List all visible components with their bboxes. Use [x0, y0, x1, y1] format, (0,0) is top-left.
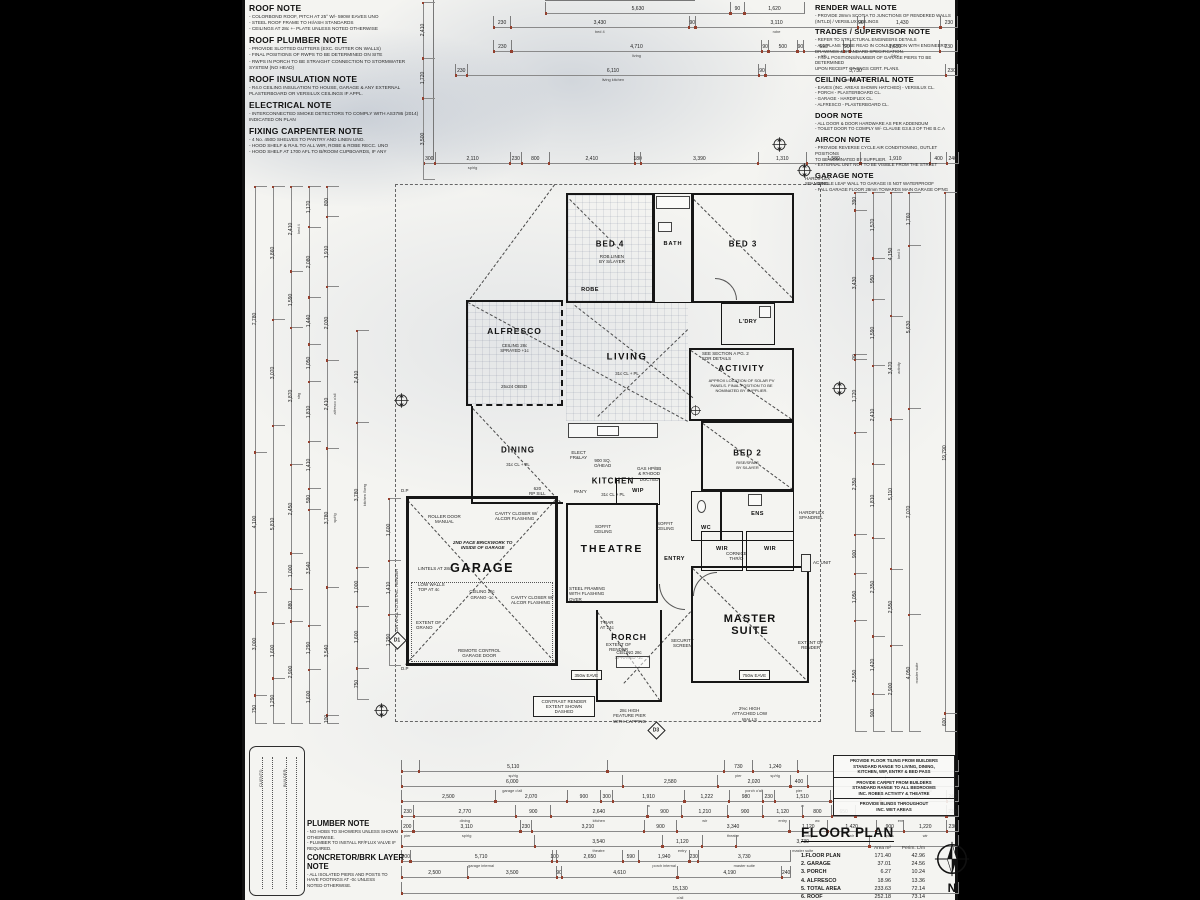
room-sublabel: 31c CL + PL: [476, 462, 561, 467]
table-spacer: [801, 845, 859, 852]
annotation-ohead: 900 SQ. O/HEAD: [594, 458, 611, 469]
note-title: DOOR NOTE: [815, 111, 957, 120]
dim-column: 19,790600: [945, 192, 957, 732]
cutoff-plan-fragment: [545, 0, 695, 1]
table-row: 5. TOTAL AREA233.6372.14: [801, 885, 929, 893]
note-title: ROOF INSULATION NOTE: [249, 74, 421, 84]
note-body: - ALL DOOR & DOOR HARDWARE AS PER ADDEND…: [815, 121, 957, 132]
north-label: N: [931, 881, 973, 895]
clients-label: CLIENTS:: [258, 769, 263, 787]
dim-column: 2,410bed 41,5903,870strg2,4501,0008802,9…: [291, 186, 303, 724]
dim-row: 5,630901,620: [545, 2, 805, 14]
note-body: - PROVIDE 28mm SCOTIA TO JUNCTIONS OF RE…: [815, 13, 957, 24]
annotation-downpipe: D.P: [401, 488, 409, 493]
annotation-cavity-closer: CAVITY CLOSER W/ ALCOR FLASHING: [511, 595, 553, 606]
section-marker-icon: [689, 404, 702, 417]
note-body: - REFER TO STRUCTURAL ENGINEERS DETAILS …: [815, 37, 957, 71]
row-area: 37.01: [859, 860, 895, 868]
annotation-obsd-door: 25x24 OBSD: [501, 384, 527, 389]
annotation-soffit-ceiling: SOFFIT CEILING: [656, 521, 674, 532]
annotation-remote-door: REMOTE CONTROL GARAGE DOOR: [458, 648, 501, 659]
note-title: CEILING MATERIAL NOTE: [815, 75, 957, 84]
room-label: WIP: [632, 488, 644, 494]
note-body: - INTERCONNECTED SMOKE DETECTORS TO COMP…: [249, 111, 421, 123]
room-label: THEATRE: [581, 543, 644, 555]
room-bed2: BED 2RISE/SPALS BY S/LAYER: [701, 421, 794, 491]
section-marker-icon: [393, 392, 410, 409]
table-row: 3. PORCH6.2710.24: [801, 868, 929, 876]
builder-label: BUILDER:: [282, 769, 287, 787]
dim-column: 3,8603,0705,8101,6001,290: [273, 186, 285, 724]
note-title: ROOF PLUMBER NOTE: [249, 35, 421, 45]
room-label: ENS: [751, 511, 764, 517]
concretor-note-body: - ALL ISOLATED PIERS AND POSTS TO HAVE F…: [307, 872, 427, 889]
room-living: LIVING31c CL + PL: [566, 303, 688, 421]
row-label: 4. ALFRESCO: [801, 877, 859, 885]
annotation-extent-render: EXTENT OF RENDER: [798, 640, 823, 651]
note-title: TRADES / SUPERVISOR NOTE: [815, 27, 957, 36]
room-label: DINING: [501, 446, 535, 455]
concretor-note-title: CONCRETOR/BRK LAYER NOTE: [307, 854, 427, 872]
annotation-eave-350: 350w EAVE: [571, 670, 602, 680]
row-label: 2. GARAGE: [801, 860, 859, 868]
diamond-marker-d3: D3: [647, 721, 665, 739]
note-title: ELECTRICAL NOTE: [249, 100, 421, 110]
room-label: ALFRESCO: [487, 326, 542, 336]
row-label: 6. ROOF: [801, 893, 859, 900]
dim-column: 7,7804,1003,000750: [255, 186, 267, 724]
annotation-lintels: LINTELS AT 28c: [418, 566, 451, 571]
basin: [658, 222, 672, 232]
annotation-extent-render: EXTENT OF RENDER: [606, 642, 631, 653]
section-marker-icon: [373, 702, 390, 719]
note-body: - SINGLE LEAF WALL TO GARAGE IS NOT WATE…: [815, 181, 957, 192]
annotation-brickwork: 2ND FACE BRICKWORK TO INSIDE OF GARAGE: [453, 540, 512, 551]
plumber-note-body: - NO HOBS TO SHOWERS UNLESS SHOWN OTHERW…: [307, 829, 427, 852]
row-area: 6.27: [859, 868, 895, 876]
annotation-ac-unit: AC UNIT: [813, 560, 831, 565]
row-area: 252.18: [859, 893, 895, 900]
north-compass: N: [931, 840, 973, 895]
room-label: PORCH: [611, 632, 647, 642]
annotation-see-section: SEE SECTION A PG. 2 FOR DETAILS: [702, 351, 749, 362]
dim-column: 1,5709501,5902,4101,8102,3501,420900: [873, 192, 885, 732]
room-label: BED 2: [733, 449, 762, 458]
row-perim: 24.56: [895, 860, 929, 868]
dotted-line: [296, 757, 297, 889]
note-body: - R4.0 CEILING INSULATION TO HOUSE, GARA…: [249, 85, 421, 97]
annotation-hardiflex: HARDIFLEX SPANDREL: [799, 510, 824, 521]
note-title: FIXING CARPENTER NOTE: [249, 126, 421, 136]
room-label: BED 4: [596, 239, 625, 248]
row-perim: 13.36: [895, 877, 929, 885]
note-title: ROOF NOTE: [249, 3, 421, 13]
note-body: - 4 No. 450D SHELVES TO PANTRY AND LINEN…: [249, 137, 421, 155]
room-label: LIVING: [607, 352, 648, 363]
room-label: GARAGE: [450, 561, 514, 575]
note-title: AIRCON NOTE: [815, 135, 957, 144]
room-wir-2: WIR: [746, 531, 794, 571]
provide-note: PROVIDE CARPET FROM BUILDERS STANDARD RA…: [834, 778, 954, 800]
room-sublabel: 31c CL + PL: [570, 371, 685, 376]
note-title: GARAGE NOTE: [815, 171, 957, 180]
dim-column: 1,7605,6307,0704,050master suite: [909, 192, 921, 732]
room-label: BED 3: [729, 239, 758, 248]
ens-basin: [748, 494, 762, 506]
room-sublabel: APPROX LOCATION OF SOLAR PV PANELS. FINA…: [694, 378, 789, 393]
room-robe: ROBE: [568, 281, 612, 301]
dim-column: 2,4103,780kitchen l'berg1,0001,600750: [357, 330, 369, 700]
row-perim: 42.96: [895, 852, 929, 860]
room-label: ACTIVITY: [718, 363, 765, 373]
section-marker-icon: [831, 380, 848, 397]
row-area: 233.63: [859, 885, 895, 893]
room-label: ROBE: [581, 287, 599, 293]
marker-label: D1: [394, 638, 400, 644]
floor-plan-title: FLOOR PLAN: [801, 825, 894, 842]
annotation-downpipe: D.P: [401, 666, 409, 671]
table-row: 4. ALFRESCO18.9613.36: [801, 877, 929, 885]
dotted-line: [272, 757, 273, 889]
room-label: L'DRY: [739, 319, 757, 325]
ac-unit-box: [801, 554, 811, 572]
room-label: BATH: [663, 241, 682, 247]
room-bed3: BED 3: [692, 193, 794, 303]
row-area: 18.96: [859, 877, 895, 885]
row-perim: 73.14: [895, 893, 929, 900]
row-perim: 72.14: [895, 885, 929, 893]
provide-notes-box: PROVIDE FLOOR TILING FROM BUILDERS STAND…: [833, 755, 955, 816]
dim-column: 4,150bed 33,470activity5,1102,5502,900: [891, 192, 903, 732]
annotation-elect: ELECT FR&LAY: [570, 450, 587, 461]
room-sublabel: CEILING 28c SPRAYED +1c: [471, 343, 558, 354]
row-label: 3. PORCH: [801, 868, 859, 876]
bottom-left-notes: PLUMBER NOTE - NO HOBS TO SHOWERS UNLESS…: [307, 820, 427, 891]
dim-column: 3903,430901,7202,3509001,0502,550: [855, 192, 867, 732]
row-label: 1.FLOOR PLAN: [801, 852, 859, 860]
note-body: - PROVIDE SLOTTED GUTTERS (EXC. GUTTER O…: [249, 46, 421, 70]
dim-column: 1,1702,0801,4401,0501,8101,4105903,5401,…: [309, 186, 321, 724]
drawing-paper: ROOF NOTE- COLORBOND ROOF, PITCH AT 25° …: [242, 0, 958, 900]
dim-row: 2,5003,500904,6104,190240: [401, 866, 791, 878]
annotation-security-screen: SECURITY SCREEN: [671, 638, 694, 649]
annotation-contrast-render: CONTRAST RENDER EXTENT SHOWN DASHED: [533, 696, 595, 717]
scanned-floor-plan-page: ROOF NOTE- COLORBOND ROOF, PITCH AT 25° …: [0, 0, 1200, 900]
annotation-roller-door: ROLLER DOOR MANUAL: [428, 514, 461, 525]
col-header-area: Area m²: [859, 845, 895, 852]
provide-note: PROVIDE FLOOR TILING FROM BUILDERS STAND…: [834, 756, 954, 778]
notes-column-left: ROOF NOTE- COLORBOND ROOF, PITCH AT 25° …: [249, 3, 421, 159]
annotation-tbar: T-BAR AT 24c: [600, 620, 614, 631]
annotation-soffit-ceiling: SOFFIT CEILING: [594, 524, 612, 535]
row-label: 5. TOTAL AREA: [801, 885, 859, 893]
dim-column: 2,4101,7203,500: [423, 2, 435, 180]
compass-icon: [933, 840, 971, 878]
signature-box: CLIENTS: BUILDER:: [249, 746, 305, 896]
toilet: [697, 500, 706, 513]
annotation-pantry: PAN'Y: [574, 489, 587, 494]
floor-plan-summary: FLOOR PLAN Area m²Perim. L/m 1.FLOOR PLA…: [801, 824, 931, 900]
bathtub: [656, 196, 690, 209]
table-row: 2. GARAGE37.0124.56: [801, 860, 929, 868]
marker-label: D3: [653, 728, 659, 734]
room-alfresco: ALFRESCOCEILING 28c SPRAYED +1c: [466, 300, 563, 406]
room-label: WIR: [764, 546, 776, 552]
room-bath: BATH: [654, 193, 692, 303]
note-body: - EAVES (INC. AREAS SHOWN HATCHED) - VER…: [815, 85, 957, 108]
annotation-attached-low-walls: 2%c HIGH ATTACHED LOW WALLS: [732, 706, 767, 722]
annotation-cavity-closer: CAVITY CLOSER W/ ALCOR FLASHING: [495, 511, 537, 522]
section-marker-icon: [771, 136, 788, 153]
annotation-robe-linen: ROB.LINEN BY S/LAYER: [599, 254, 625, 265]
annotation-low-walls: LOW WALLS TOP AT 4c: [418, 582, 445, 593]
annotation-gas: GAS HP/BB & R'HOOD DUCTED: [637, 466, 661, 482]
porch-pier-pad: [616, 656, 650, 668]
col-header-perim: Perim. L/m: [895, 845, 929, 852]
room-label: ENTRY: [664, 556, 685, 562]
laundry-trough: [759, 306, 771, 318]
dim-row: 2005,710garage internal1002,6505901,940p…: [401, 850, 791, 862]
plumber-note-title: PLUMBER NOTE: [307, 820, 427, 829]
area-table: Area m²Perim. L/m 1.FLOOR PLAN171.4042.9…: [801, 845, 929, 900]
annotation-rp-sill: 620 RP SILL: [529, 486, 546, 497]
dim-column: 8001,9102,0302,410alfresco o'all3,780sp/…: [327, 186, 339, 724]
annotation-cornice: CORNICE THR/O: [726, 551, 747, 562]
table-row: 1.FLOOR PLAN171.4042.96: [801, 852, 929, 860]
annotation-extent-grano: EXTENT OF GRANO: [416, 620, 441, 631]
table-row: 6. ROOF252.1873.14: [801, 893, 929, 900]
room-label: MASTER SUITE: [724, 612, 776, 636]
provide-note: PROVIDE BLINDS THROUGHOUT INC. WET AREAS: [834, 799, 954, 814]
note-body: - COLORBOND ROOF, PITCH AT 25° W/- 590W …: [249, 14, 421, 32]
annotation-feature-pier: 28c HIGH FEATURE PIER WITH CAPPING: [613, 708, 646, 724]
room-sublabel: RISE/SPALS BY S/LAYER: [706, 461, 790, 471]
row-area: 171.40: [859, 852, 895, 860]
row-perim: 10.24: [895, 868, 929, 876]
room-dining: DINING31c CL + PL: [471, 406, 563, 504]
annotation-eave-750: 750w EAVE: [739, 670, 770, 680]
annotation-steel-framing: STEEL FRAMING WITH FLASHING OVER: [569, 586, 605, 602]
cooktop: [597, 426, 619, 436]
section-marker-icon: [796, 162, 813, 179]
note-title: RENDER WALL NOTE: [815, 3, 957, 12]
note-body: - PROVIDE REVERSE CYCLE AIR CONDITIONING…: [815, 145, 957, 168]
notes-column-right: RENDER WALL NOTE- PROVIDE 28mm SCOTIA TO…: [815, 3, 957, 195]
